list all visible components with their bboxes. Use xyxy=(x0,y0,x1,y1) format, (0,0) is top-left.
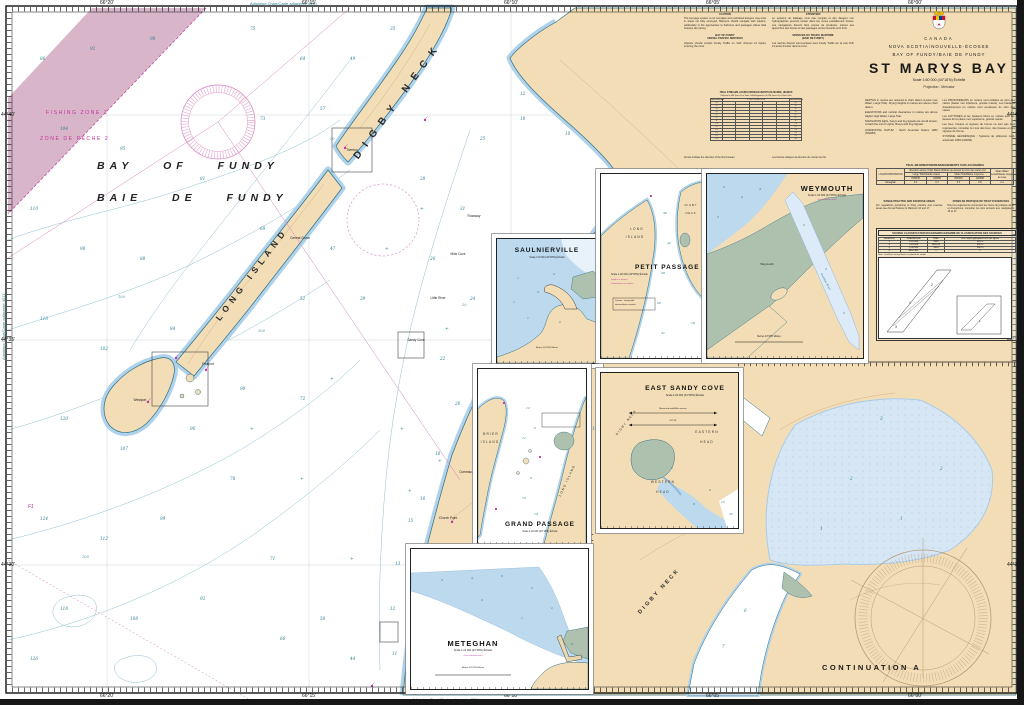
svg-text:2: 2 xyxy=(939,466,943,471)
svg-text:8: 8 xyxy=(530,476,532,480)
svg-text:12: 12 xyxy=(526,406,530,410)
chart-projection: Projection : Mercator xyxy=(863,85,1015,89)
svg-text:1: 1 xyxy=(900,516,903,521)
svg-text:84: 84 xyxy=(170,326,176,331)
svg-text:22: 22 xyxy=(439,356,446,361)
svg-text:3: 3 xyxy=(895,325,897,329)
svg-text:12: 12 xyxy=(520,91,526,96)
svg-text:31: 31 xyxy=(661,331,665,335)
svg-text:18: 18 xyxy=(435,451,441,456)
svg-text:57: 57 xyxy=(320,106,326,111)
svg-text:52: 52 xyxy=(300,296,306,301)
svg-text:95: 95 xyxy=(120,146,126,151)
svg-text:92: 92 xyxy=(200,596,206,601)
place-name: Westport xyxy=(134,398,147,402)
range-practice-notes: RANGE PRACTICE AND EXERCISE AREASFor reg… xyxy=(876,200,1014,216)
svg-text:2: 2 xyxy=(849,476,853,481)
svg-text:24: 24 xyxy=(469,296,476,301)
source-classification: SOURCE CLASSIFICATION DIAGRAM/DIAGRAMME … xyxy=(876,228,1018,341)
tidal-info-row: Meteghan4.1 0.13.3 0.82.1 xyxy=(877,181,1014,185)
notes-right: DEPTHS in metres are reduced to chart da… xyxy=(865,99,1015,142)
svg-text:0: 0 xyxy=(559,320,561,324)
svg-text:5: 5 xyxy=(723,185,725,189)
bay-of-fundy-label: BAY OF FUNDY xyxy=(97,160,279,172)
svg-text:81: 81 xyxy=(200,176,205,181)
svg-text:22: 22 xyxy=(728,512,733,516)
svg-text:98: 98 xyxy=(150,36,156,41)
svg-text:78: 78 xyxy=(230,476,236,481)
svg-text:75: 75 xyxy=(250,26,256,31)
svg-text:2: 2 xyxy=(670,466,673,470)
inset-saulnierville: 122101 SAULNIERVILLE Scale 1:5 000 (44°1… xyxy=(496,238,599,364)
svg-text:107: 107 xyxy=(120,446,128,451)
svg-text:+: + xyxy=(330,376,334,382)
place-name: Central Grove xyxy=(290,236,310,240)
place-name: Comeauville xyxy=(459,470,477,474)
svg-text:2: 2 xyxy=(552,272,555,276)
svg-text:2: 2 xyxy=(530,586,533,590)
svg-text:86: 86 xyxy=(40,56,46,61)
svg-text:+: + xyxy=(385,246,389,252)
title-province: NOVA SCOTIA/NOUVELLE-ÉCOSSE xyxy=(863,44,1015,49)
svg-text:2: 2 xyxy=(480,598,483,602)
svg-text:1: 1 xyxy=(521,616,523,620)
svg-text:1: 1 xyxy=(513,300,515,304)
svg-text:ISLAND: ISLAND xyxy=(626,235,645,239)
svg-text:71: 71 xyxy=(270,556,275,561)
nautical-chart-sheet: DIGBY NECK LONG ISLAND DIGBY NECK 501001… xyxy=(0,0,1024,705)
graticule-label: 44°30' xyxy=(1,562,15,568)
svg-text:26: 26 xyxy=(656,301,661,305)
svg-text:EASTERN: EASTERN xyxy=(695,430,718,434)
svg-text:102: 102 xyxy=(100,346,108,351)
svg-text:6: 6 xyxy=(744,608,747,613)
title-region: BAY OF FUNDY/BAIE DE FUNDY xyxy=(863,52,1015,57)
svg-text:49: 49 xyxy=(349,56,356,61)
svg-text:18: 18 xyxy=(520,116,526,121)
svg-text:50: 50 xyxy=(330,137,335,141)
svg-text:2: 2 xyxy=(842,311,845,315)
place-name: Sandy Cove xyxy=(407,338,424,342)
svg-text:4: 4 xyxy=(758,187,761,191)
svg-text:2: 2 xyxy=(536,290,539,294)
svg-text:18: 18 xyxy=(691,321,695,325)
svg-text:2: 2 xyxy=(802,223,805,227)
svg-text:26: 26 xyxy=(429,256,436,261)
svg-text:25: 25 xyxy=(479,136,486,141)
svg-text:31: 31 xyxy=(460,206,465,211)
svg-text:15: 15 xyxy=(408,518,414,523)
svg-text:1: 1 xyxy=(527,316,529,320)
svg-text:3: 3 xyxy=(441,578,443,582)
svg-text:69: 69 xyxy=(260,226,266,231)
svg-text:BRIER: BRIER xyxy=(483,432,499,436)
svg-text:LONG: LONG xyxy=(630,227,644,231)
svg-text:88: 88 xyxy=(140,256,146,261)
svg-text:98: 98 xyxy=(80,246,86,251)
svg-text:6: 6 xyxy=(693,502,695,506)
svg-text:100: 100 xyxy=(82,555,90,559)
svg-text:11: 11 xyxy=(392,651,397,656)
svg-text:WESTERN: WESTERN xyxy=(651,480,675,484)
svg-text:124: 124 xyxy=(40,516,48,521)
svg-text:4: 4 xyxy=(470,576,473,580)
svg-text:20: 20 xyxy=(454,401,461,406)
svg-text:2: 2 xyxy=(550,606,553,610)
svg-text:3: 3 xyxy=(880,416,883,421)
svg-text:9: 9 xyxy=(534,426,536,430)
inset-weymouth: Sissiboo River 5434222 WEYMOUTH Scale 1:… xyxy=(706,173,864,359)
baie-de-fundy-label: BAIE DE FUNDY xyxy=(97,192,288,204)
fishing-zone-en-label: FISHING ZONE 2 xyxy=(46,110,108,116)
graticule-label: 66°20' xyxy=(100,0,114,6)
svg-text:+: + xyxy=(438,458,442,464)
svg-text:112: 112 xyxy=(100,536,108,541)
flood-arrow-notes: Arrows indicate the direction of the flo… xyxy=(684,156,854,161)
notes-top-centre: CAUTIONThe buoyage system is not complet… xyxy=(684,13,854,50)
svg-text:108: 108 xyxy=(130,616,138,621)
svg-text:64: 64 xyxy=(300,56,306,61)
inset-meteghan: 34322120 METEGHAN Scale 1:10 000 (44°18'… xyxy=(410,548,589,690)
sheet-edge-bottom xyxy=(0,699,1024,705)
svg-text:73: 73 xyxy=(260,116,266,121)
svg-text:13: 13 xyxy=(395,561,401,566)
brier-island-land xyxy=(104,358,174,433)
fishing-zone-fr-label: ZONE DE PÊCHE 2 xyxy=(40,136,109,142)
svg-text:120: 120 xyxy=(60,416,68,421)
source-diagram-map: 1 2 3 1 xyxy=(878,257,1012,339)
svg-text:90: 90 xyxy=(240,386,246,391)
svg-text:0: 0 xyxy=(571,642,573,646)
place-name: Rossway xyxy=(468,214,481,218)
svg-text:66: 66 xyxy=(280,636,286,641)
f1-label: F1 xyxy=(28,504,34,510)
svg-text:99: 99 xyxy=(160,516,166,521)
svg-text:3: 3 xyxy=(717,215,719,219)
svg-text:DIGBY: DIGBY xyxy=(685,203,698,207)
svg-text:+: + xyxy=(400,426,404,432)
svg-text:14: 14 xyxy=(592,426,598,431)
svg-text:+: + xyxy=(350,556,354,562)
graticule-label: 44°40' xyxy=(1,112,15,118)
tidal-information: TIDAL INFORMATION/RENSEIGNEMENTS SUR LES… xyxy=(876,164,1014,185)
graticule-label: 66°15' xyxy=(302,0,316,6)
svg-text:72: 72 xyxy=(300,396,306,401)
svg-text:100: 100 xyxy=(118,295,126,299)
svg-text:ISLAND: ISLAND xyxy=(481,440,500,444)
svg-text:126: 126 xyxy=(30,656,38,661)
svg-text:1: 1 xyxy=(820,526,823,531)
svg-text:1: 1 xyxy=(909,301,911,305)
svg-text:35: 35 xyxy=(390,26,396,31)
svg-text:96: 96 xyxy=(190,426,196,431)
svg-text:1: 1 xyxy=(517,276,519,280)
graticule-label: 66°05' xyxy=(706,0,720,6)
svg-text:HEAD: HEAD xyxy=(656,490,670,494)
svg-text:110: 110 xyxy=(30,206,38,211)
inset-grand-passage: BRIER ISLAND LONG ISLAND 1291181014 GRAN… xyxy=(477,368,587,545)
svg-text:47: 47 xyxy=(329,246,336,251)
place-name: Freeport xyxy=(202,362,214,366)
svg-text:10: 10 xyxy=(522,496,526,500)
svg-text:HEAD: HEAD xyxy=(700,440,714,444)
svg-text:3: 3 xyxy=(501,574,503,578)
tidal-streams-table: TIDAL STREAMS, HOURS FROM/COURANTS DE MA… xyxy=(710,92,802,141)
sheet-edge-right xyxy=(1017,0,1024,705)
svg-text:2: 2 xyxy=(931,283,933,287)
svg-text:30: 30 xyxy=(663,211,667,215)
graticule-label: 44°35' xyxy=(1,337,15,343)
svg-text:58: 58 xyxy=(320,616,326,621)
title-block: CANADA NOVA SCOTIA/NOUVELLE-ÉCOSSE BAY O… xyxy=(863,10,1015,89)
place-name: Tiverton xyxy=(346,148,357,152)
svg-text:+: + xyxy=(408,488,412,494)
svg-text:92: 92 xyxy=(90,46,96,51)
continuation-a-label: CONTINUATION A xyxy=(822,663,921,672)
svg-text:12: 12 xyxy=(390,606,396,611)
svg-text:+: + xyxy=(300,476,304,482)
svg-text:9: 9 xyxy=(709,488,711,492)
svg-text:11: 11 xyxy=(522,436,526,440)
svg-text:100: 100 xyxy=(258,329,266,333)
svg-text:15: 15 xyxy=(721,500,725,504)
svg-text:2: 2 xyxy=(824,267,827,271)
svg-text:118: 118 xyxy=(60,606,68,611)
svg-text:+: + xyxy=(445,326,449,332)
svg-text:104: 104 xyxy=(60,126,68,131)
chart-scale: Scale 1:60 000 (44°18'N) Échelle xyxy=(863,78,1015,82)
svg-text:116: 116 xyxy=(40,316,48,321)
title-country: CANADA xyxy=(863,36,1015,41)
svg-text:16: 16 xyxy=(420,496,426,501)
digby-neck-land xyxy=(336,8,452,162)
svg-text:44: 44 xyxy=(349,656,356,661)
svg-text:28: 28 xyxy=(419,176,426,181)
chart-title: ST MARYS BAY xyxy=(863,60,1015,76)
canada-coat-of-arms xyxy=(930,10,948,30)
inset-east-sandy-cove: DIGBY NECK EASTERN HEAD WESTERN HEAD 152… xyxy=(600,372,739,529)
svg-text:20: 20 xyxy=(461,303,467,307)
inset-petit-passage: LONG ISLAND DIGBY NECK 304238263118 PETI… xyxy=(600,173,704,359)
svg-text:NECK: NECK xyxy=(686,211,697,215)
dashed-circle xyxy=(347,184,419,256)
svg-text:7: 7 xyxy=(722,644,725,649)
graticule-label: 66°10' xyxy=(504,0,518,6)
place-name: Little River xyxy=(430,296,445,300)
svg-text:4: 4 xyxy=(740,195,743,199)
svg-text:42: 42 xyxy=(666,241,671,245)
svg-text:+: + xyxy=(420,206,424,212)
svg-text:+: + xyxy=(250,426,254,432)
svg-text:10: 10 xyxy=(565,131,571,136)
place-name: Mink Cove xyxy=(450,252,465,256)
adjoining-chart-left: Adjoining Chart/Carte adjacente 4011 xyxy=(1,294,6,360)
svg-text:39: 39 xyxy=(360,296,366,301)
graticule-label: 66°00' xyxy=(908,0,922,6)
svg-text:14: 14 xyxy=(534,512,538,516)
svg-text:38: 38 xyxy=(661,271,665,275)
place-name: Church Point xyxy=(439,516,457,520)
